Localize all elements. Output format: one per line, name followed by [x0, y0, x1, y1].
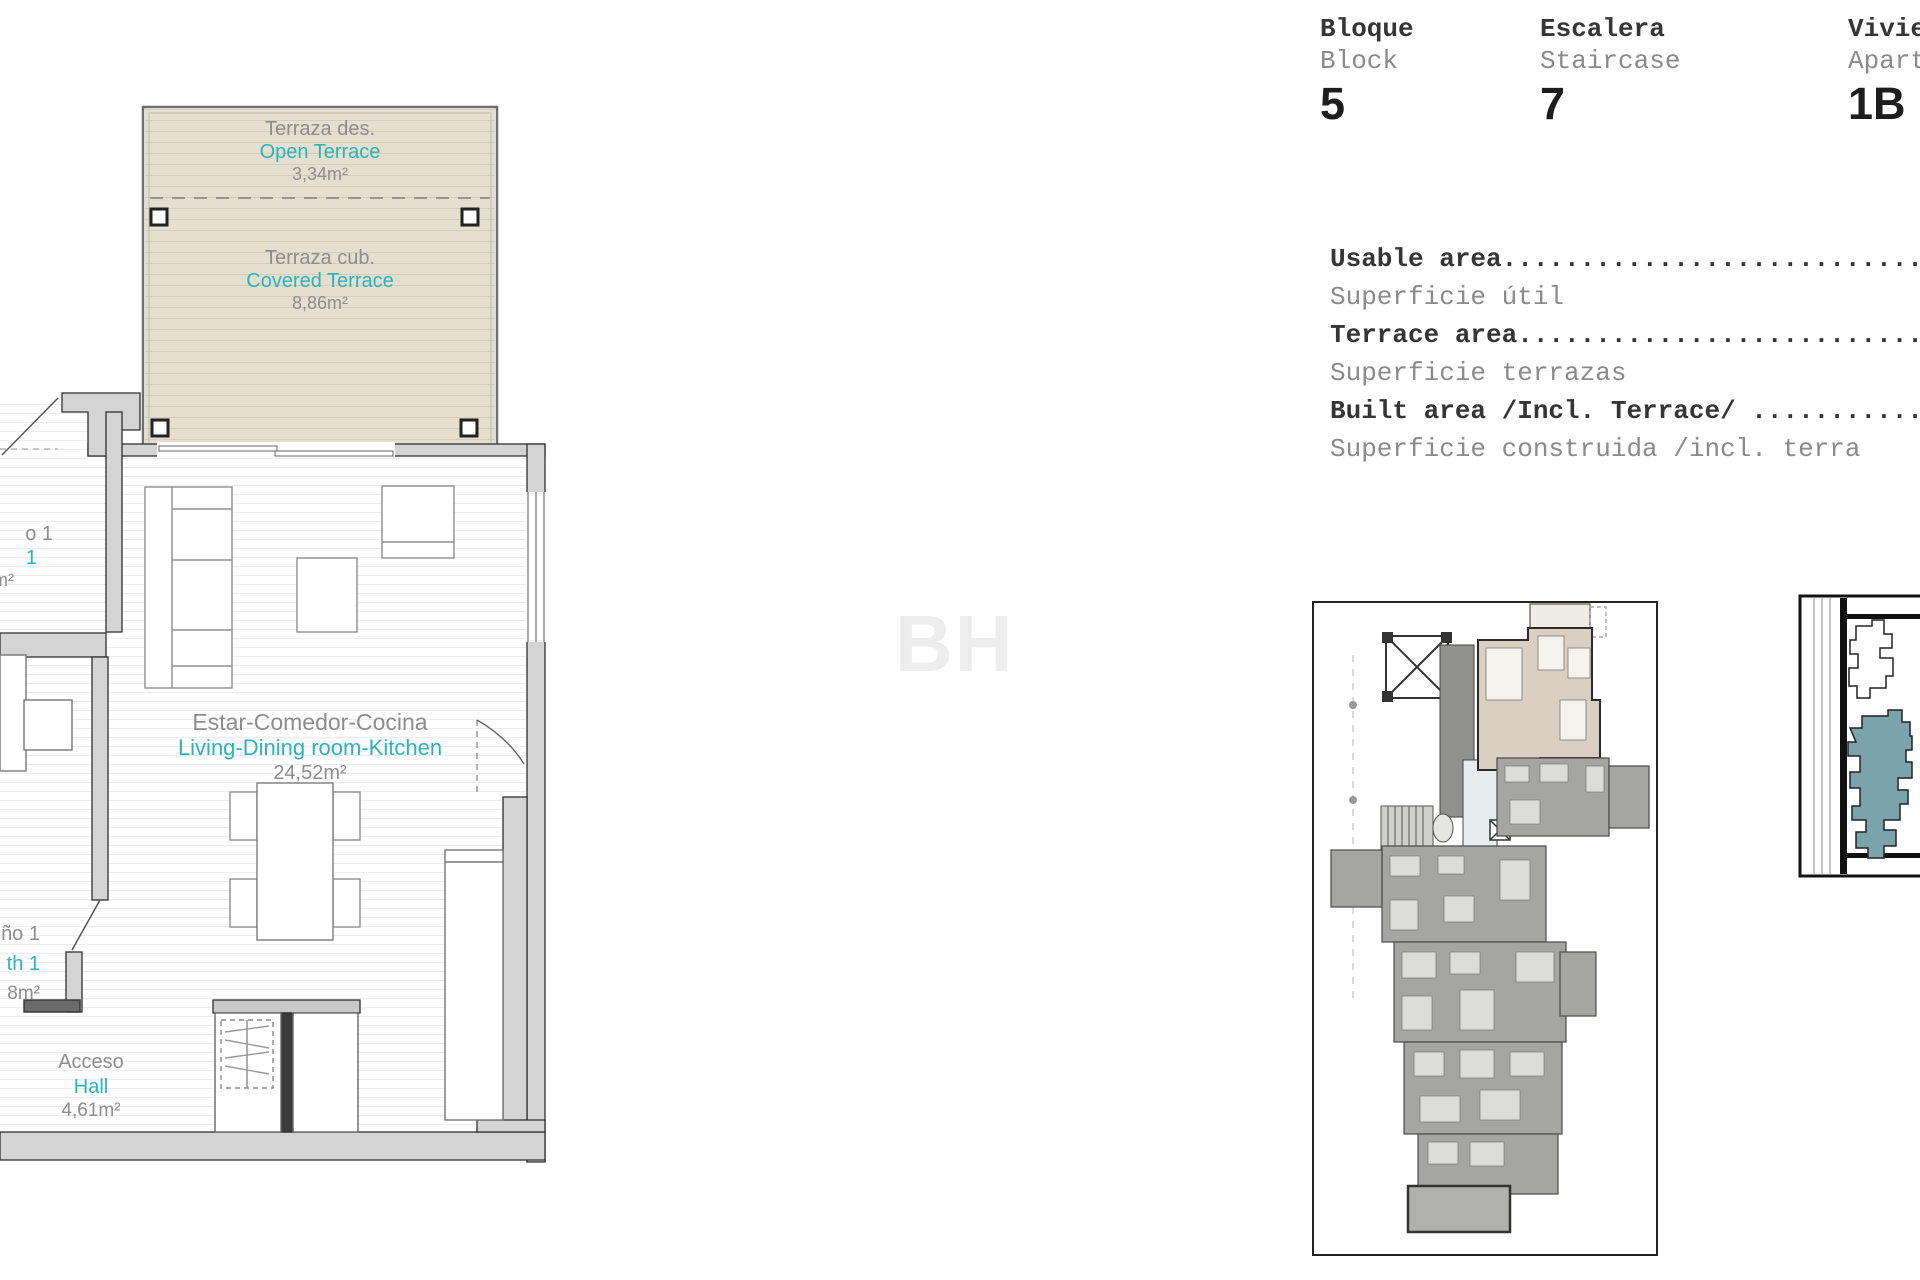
block-title-es: Bloque: [1320, 16, 1414, 42]
apartment-value: 1B: [1848, 78, 1906, 130]
terrace-open-area: 3,34m²: [190, 165, 450, 183]
living-area: 24,52m²: [160, 763, 460, 783]
armchair: [382, 486, 454, 558]
terrace-covered-label-en: Covered Terrace: [190, 271, 450, 291]
key-plan: [1800, 596, 1920, 876]
living-label-es: Estar-Comedor-Cocina: [160, 711, 460, 734]
apartment-title-en-fragment: Apart: [1848, 48, 1920, 74]
hall-label-en: Hall: [11, 1077, 171, 1097]
block-value: 5: [1320, 78, 1345, 130]
bedroom-label-en-fragment: 1: [0, 548, 37, 568]
terrace-sliding-door: [157, 442, 395, 458]
plan-sheet: BH Terraza des. Open Terrace 3,34m² Terr…: [0, 0, 1920, 1280]
block-title-en: Block: [1320, 48, 1398, 74]
terrace-open-label-en: Open Terrace: [190, 142, 450, 162]
living-label-en: Living-Dining room-Kitchen: [160, 737, 460, 759]
terrace-covered-area: 8,86m²: [190, 294, 450, 312]
site-plan: [1313, 602, 1657, 1255]
staircase-title-es: Escalera: [1540, 16, 1665, 42]
built-area-row-es: Superficie construida /incl. terra: [1330, 436, 1861, 462]
hall-label-es: Acceso: [11, 1052, 171, 1072]
bedroom-area-fragment: m²: [0, 571, 14, 589]
hall-area: 4,61m²: [11, 1101, 171, 1120]
bath-toilet: [24, 700, 72, 750]
staircase-value: 7: [1540, 78, 1565, 130]
side-table: [297, 558, 357, 632]
bath-label-es-fragment: ño 1: [0, 924, 40, 944]
watermark: BH: [895, 598, 1015, 690]
terrace-area-row-es: Superficie terrazas: [1330, 360, 1626, 386]
right-wall-window: [525, 492, 547, 642]
sofa: [145, 487, 232, 688]
terrace-covered-label-es: Terraza cub.: [190, 248, 450, 268]
apartment-title-es-fragment: Vivie: [1848, 16, 1920, 42]
kitchen-counter: [445, 850, 503, 1120]
terrace-area-row-en: Terrace area............................…: [1330, 322, 1920, 348]
usable-area-row-en: Usable area.............................…: [1330, 246, 1920, 272]
usable-area-row-es: Superficie útil: [1330, 284, 1564, 310]
bedroom-label-es-fragment: o 1: [0, 524, 53, 544]
staircase-title-en: Staircase: [1540, 48, 1680, 74]
terrace-open-label-es: Terraza des.: [190, 119, 450, 139]
bath-label-en-fragment: th 1: [0, 954, 40, 974]
built-area-row-en: Built area /Incl. Terrace/ .............…: [1330, 398, 1920, 424]
bath-area-fragment: 8m²: [0, 984, 40, 1003]
bath-fixture: [0, 655, 26, 771]
